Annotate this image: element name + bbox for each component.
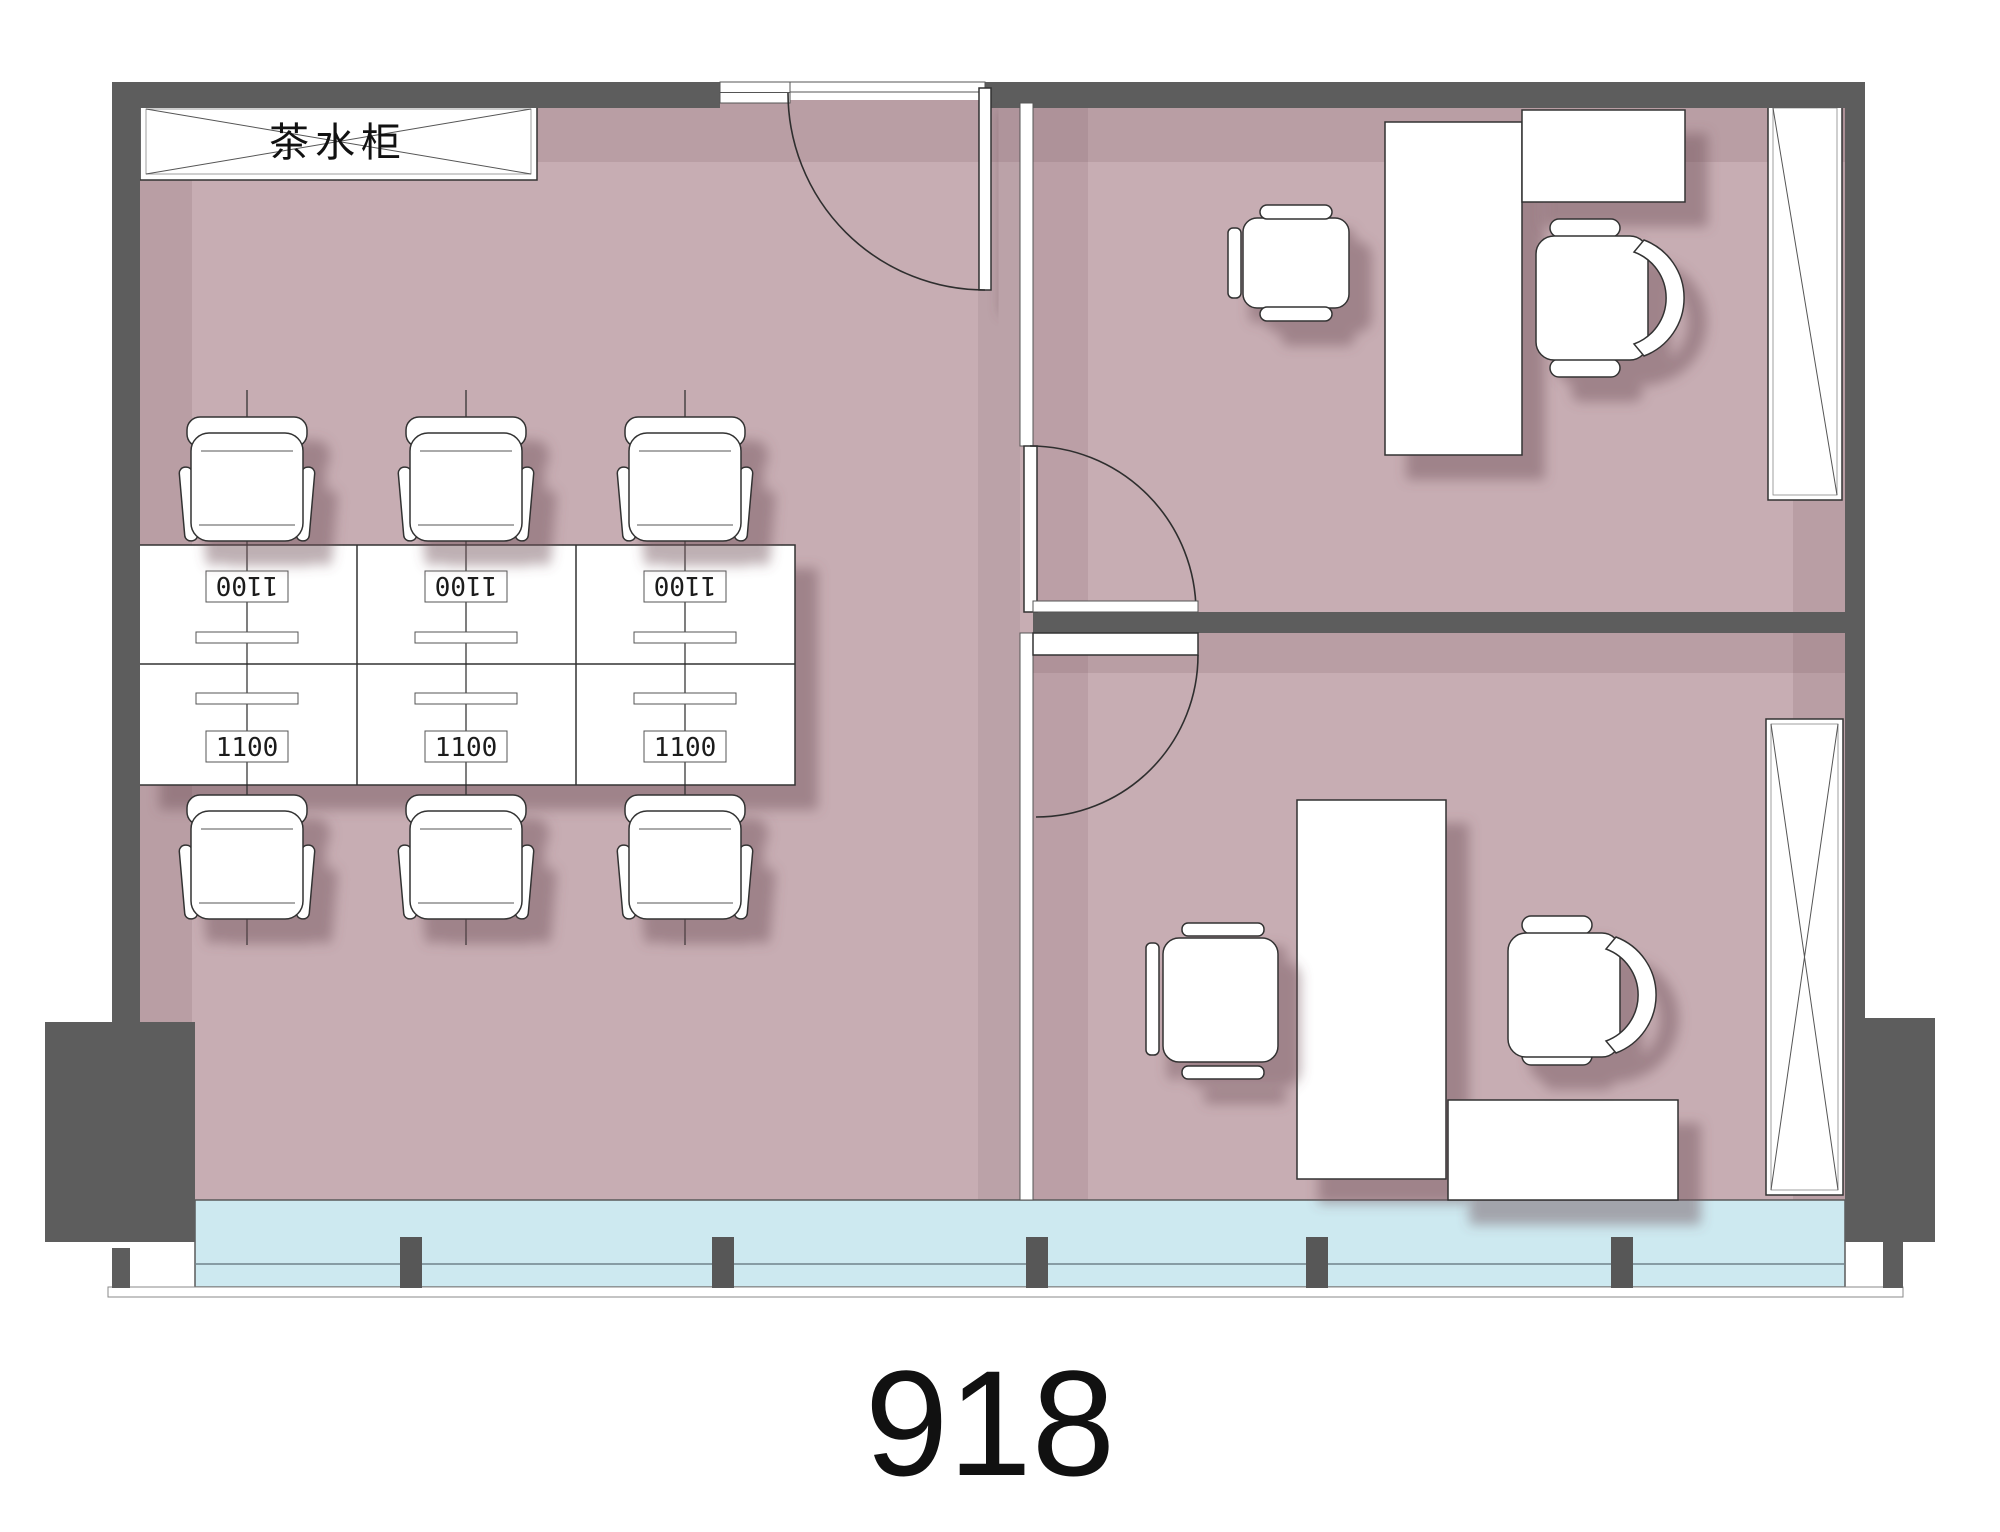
task-chair [617, 795, 753, 919]
tall-cabinet-x [1766, 719, 1843, 1195]
visitor-chair [1228, 205, 1349, 321]
desk-dimension-label: 1100 [654, 570, 717, 600]
office-desk [1297, 800, 1446, 1179]
mullion [1026, 1237, 1048, 1288]
column-bottom-left [45, 1022, 195, 1242]
keyboard-tray [196, 693, 298, 704]
tall-cabinet [1768, 103, 1842, 500]
task-chair [179, 417, 315, 541]
door-leaf [1033, 633, 1198, 655]
wall-left [112, 108, 140, 1022]
task-chair [617, 417, 753, 541]
partition-upper [1020, 103, 1033, 446]
wall-top-right [985, 82, 1865, 108]
keyboard-tray [415, 693, 517, 704]
task-chair [179, 795, 315, 919]
floor-plan-drawing: 1100 1100 1100 1100 1100 1100 [0, 0, 2000, 1532]
desk-dimension-label: 1100 [216, 570, 279, 600]
mullion [1611, 1237, 1633, 1288]
desk-dimension-labels-top: 1100 1100 1100 [206, 570, 726, 602]
desk-dimension-label: 1100 [654, 733, 717, 763]
divider-cap [1033, 601, 1198, 612]
keyboard-tray [415, 632, 517, 643]
unit-number: 918 [865, 1339, 1115, 1507]
wall-right [1845, 108, 1865, 1018]
door-leaf [979, 88, 991, 290]
desk-dimension-labels-bottom: 1100 1100 1100 [206, 731, 726, 763]
partition-lower [1020, 633, 1033, 1200]
keyboard-tray [634, 693, 736, 704]
mullion [1306, 1237, 1328, 1288]
column-bottom-right [1845, 1018, 1935, 1242]
entrance-head [790, 82, 985, 92]
keyboard-tray [634, 632, 736, 643]
credenza [1448, 1100, 1678, 1200]
task-chair [398, 417, 534, 541]
desk-return [1522, 110, 1685, 202]
tea-cabinet: 茶水柜 [140, 103, 537, 180]
office-desk [1385, 122, 1522, 455]
wall-stub-right [1883, 1242, 1903, 1288]
tea-cabinet-label: 茶水柜 [269, 120, 407, 166]
wall-top-left [112, 82, 720, 108]
visitor-chair [1146, 923, 1278, 1079]
mullion [712, 1237, 734, 1288]
workstation-cluster: 1100 1100 1100 1100 1100 1100 [138, 390, 795, 945]
door-leaf [1024, 446, 1037, 612]
window-sill [108, 1287, 1903, 1297]
mullion [400, 1237, 422, 1288]
keyboard-tray [196, 632, 298, 643]
floor-plan-page: 1100 1100 1100 1100 1100 1100 [0, 0, 2000, 1532]
desk-dimension-label: 1100 [435, 733, 498, 763]
window-band [108, 1200, 1903, 1297]
wall-room-divider [1033, 612, 1845, 633]
task-chair [398, 795, 534, 919]
glazing-band [195, 1200, 1845, 1287]
wall-stub-left [112, 1248, 130, 1288]
desk-dimension-label: 1100 [216, 733, 279, 763]
desk-dimension-label: 1100 [435, 570, 498, 600]
